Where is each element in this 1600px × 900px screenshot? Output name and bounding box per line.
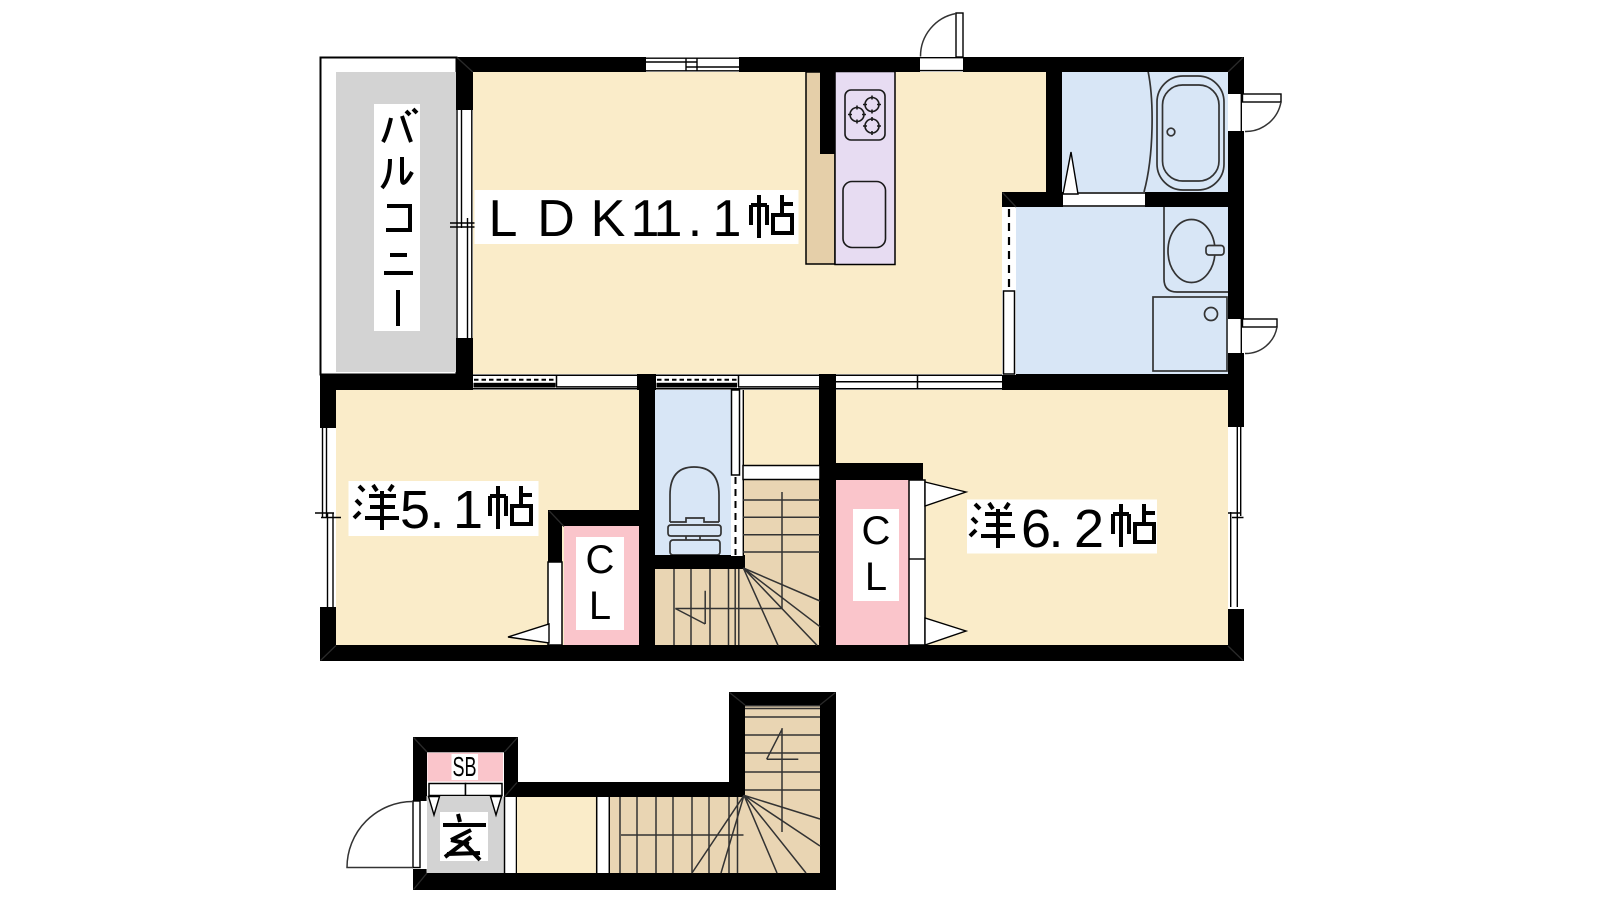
svg-text:1: 1 [713,190,742,248]
svg-text:.: . [1048,499,1063,559]
svg-text:K: K [591,190,626,248]
svg-text:1: 1 [654,190,683,248]
svg-text:L: L [589,584,611,628]
svg-text:1: 1 [453,480,483,540]
svg-text:6: 6 [1021,499,1051,559]
svg-text:2: 2 [1074,499,1104,559]
svg-text:SB: SB [453,751,477,782]
svg-text:C: C [586,538,615,582]
svg-text:L: L [489,190,518,248]
svg-text:L: L [865,555,887,599]
svg-text:.: . [688,190,702,248]
svg-text:.: . [429,480,444,540]
svg-text:C: C [862,509,891,553]
svg-text:D: D [537,190,575,248]
svg-text:5: 5 [400,480,430,540]
